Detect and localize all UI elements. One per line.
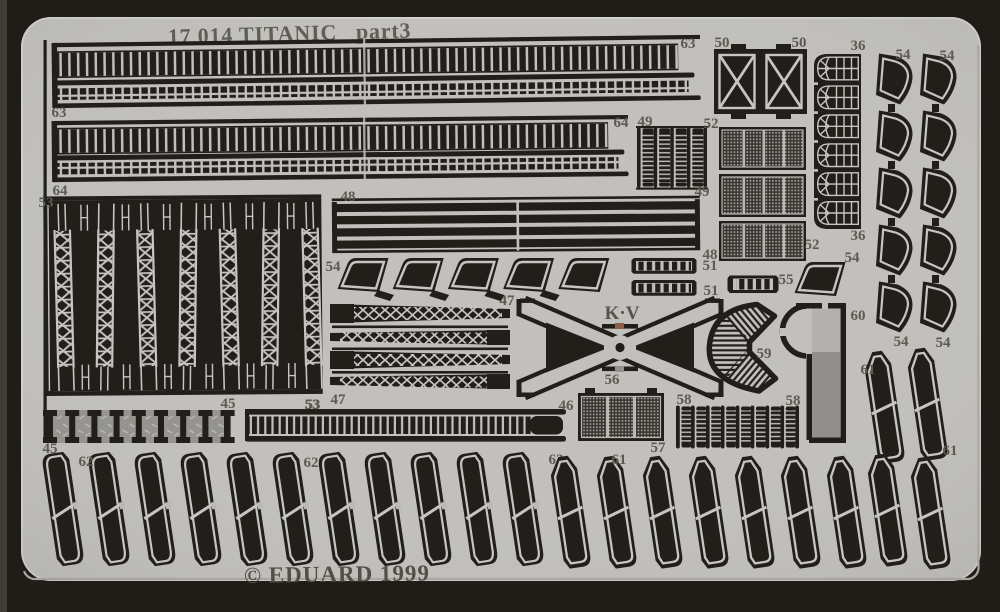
svg-text:61: 61: [861, 362, 876, 378]
svg-text:55: 55: [779, 272, 794, 288]
svg-text:61: 61: [943, 443, 958, 459]
svg-text:62: 62: [304, 455, 319, 471]
svg-text:46: 46: [559, 398, 575, 414]
svg-text:64: 64: [614, 115, 630, 131]
svg-text:58: 58: [786, 393, 801, 409]
svg-text:63: 63: [52, 105, 67, 121]
svg-text:53: 53: [39, 195, 54, 211]
svg-text:36: 36: [851, 38, 867, 54]
svg-text:50: 50: [715, 35, 730, 51]
svg-text:49: 49: [638, 114, 653, 130]
svg-text:54: 54: [894, 334, 910, 350]
svg-text:58: 58: [677, 392, 692, 408]
svg-text:54: 54: [845, 250, 861, 266]
svg-text:63: 63: [681, 36, 696, 52]
svg-text:54: 54: [326, 259, 342, 275]
svg-text:59: 59: [757, 346, 772, 362]
svg-text:57: 57: [651, 440, 667, 456]
svg-text:K·V: K·V: [605, 303, 640, 324]
svg-text:62: 62: [79, 454, 94, 470]
svg-text:47: 47: [331, 392, 347, 408]
svg-text:52: 52: [805, 237, 820, 253]
svg-text:50: 50: [792, 35, 807, 51]
svg-text:48: 48: [341, 189, 356, 205]
svg-text:56: 56: [605, 372, 621, 388]
svg-text:36: 36: [851, 228, 867, 244]
svg-text:54: 54: [936, 335, 952, 351]
svg-text:47: 47: [500, 293, 516, 309]
svg-text:© EDUARD 1999: © EDUARD 1999: [244, 560, 430, 588]
svg-text:54: 54: [896, 47, 912, 63]
svg-text:54: 54: [940, 48, 956, 64]
svg-text:51: 51: [704, 283, 719, 299]
svg-text:51: 51: [703, 258, 718, 274]
svg-text:52: 52: [704, 116, 719, 132]
svg-text:45: 45: [221, 396, 236, 412]
svg-text:49: 49: [695, 184, 710, 200]
svg-text:61: 61: [612, 452, 627, 468]
svg-text:53: 53: [305, 397, 320, 413]
svg-text:60: 60: [851, 308, 866, 324]
